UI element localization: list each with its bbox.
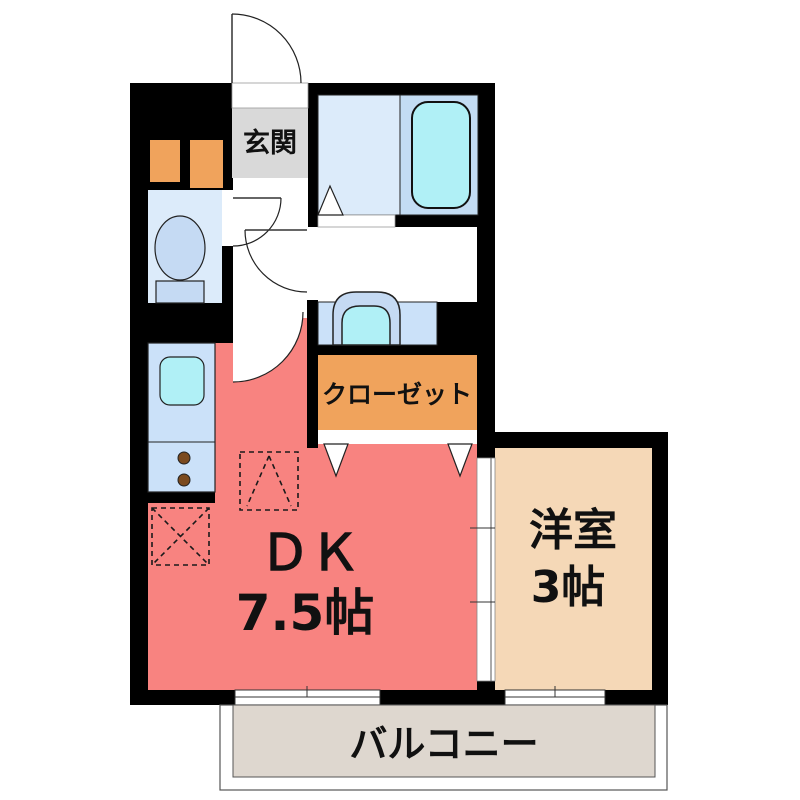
dk-label: ＤＫ bbox=[260, 524, 360, 582]
closet-door-strip bbox=[318, 430, 477, 444]
wall-genkan-bath-divider bbox=[308, 83, 318, 227]
wall-bottom-2 bbox=[380, 690, 505, 705]
wall-right-upper bbox=[477, 83, 495, 448]
wall-slide-post-bottom bbox=[477, 681, 495, 690]
wall-washroom-right bbox=[437, 300, 477, 345]
bathtub-icon bbox=[412, 102, 470, 208]
balcony-label: バルコニー bbox=[349, 722, 538, 766]
closet-label: クローゼット bbox=[322, 380, 472, 409]
entrance-threshold bbox=[232, 83, 308, 108]
western-room-label: 洋室 bbox=[529, 505, 617, 556]
shoe-cabinet-2 bbox=[190, 140, 223, 188]
stove-burner-icon-2 bbox=[178, 474, 190, 486]
bath-threshold bbox=[318, 215, 395, 227]
wall-left bbox=[130, 83, 148, 705]
washroom-door-opening bbox=[307, 227, 318, 300]
wall-toilet-side bbox=[222, 246, 233, 312]
wall-bottom-3 bbox=[605, 690, 668, 705]
hallway-floor bbox=[233, 178, 307, 318]
wall-toilet-kitchen-stub bbox=[148, 303, 233, 343]
stove-burner-icon-1 bbox=[178, 452, 190, 464]
wall-western-top bbox=[477, 432, 668, 448]
floorplan-canvas: 玄関 クローゼット ＤＫ 7.5帖 洋室 3帖 バルコニー bbox=[0, 0, 800, 800]
sliding-door-track bbox=[477, 458, 495, 681]
wall-hall-post bbox=[307, 300, 318, 448]
washbasin-bowl-icon bbox=[342, 306, 390, 345]
western-room-size-label: 3帖 bbox=[531, 562, 606, 613]
kitchen-sink-icon bbox=[160, 357, 204, 405]
wall-bath-washroom bbox=[395, 215, 478, 227]
toilet-bowl-icon bbox=[155, 216, 205, 280]
genkan-label: 玄関 bbox=[243, 127, 297, 159]
shoe-cabinet-1 bbox=[150, 140, 180, 182]
toilet-tank-icon bbox=[156, 281, 204, 303]
wall-western-right bbox=[652, 432, 668, 705]
floorplan-svg: 玄関 クローゼット ＤＫ 7.5帖 洋室 3帖 バルコニー bbox=[0, 0, 800, 800]
wall-closet-top bbox=[307, 345, 477, 355]
wall-kitchen-stub bbox=[148, 492, 215, 503]
room-washroom-floor bbox=[318, 227, 477, 302]
dk-size-label: 7.5帖 bbox=[236, 584, 375, 642]
wall-slide-post-top bbox=[477, 448, 495, 458]
wall-bottom-1 bbox=[130, 690, 235, 705]
